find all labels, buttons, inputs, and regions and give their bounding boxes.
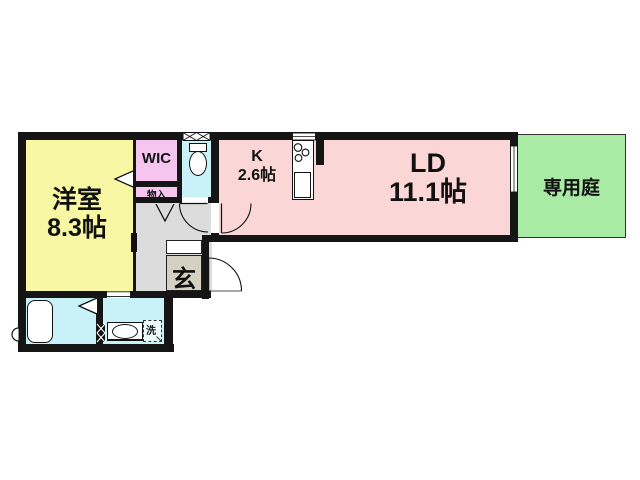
opening-room-to-washroom	[107, 291, 130, 298]
kitchen-name: K	[219, 147, 295, 166]
entrance-door-arc-icon	[209, 258, 242, 291]
living-dining-size: 11.1帖	[358, 178, 498, 207]
western-room-size: 8.3帖	[27, 214, 127, 242]
wall-entrance-right	[202, 238, 209, 299]
wall-wic-toilet	[177, 132, 182, 203]
western-room-label: 洋室 8.3帖	[27, 186, 127, 242]
entrance-label: 玄	[166, 259, 202, 294]
living-dining-label: LD 11.1帖	[358, 149, 498, 207]
entrance-step	[166, 240, 202, 254]
wall-kitchen-stub	[316, 132, 324, 165]
wall-left	[18, 132, 26, 352]
wall-bath-divider	[96, 298, 103, 344]
floorplan-canvas: 洋室 8.3帖 WIC 物入 K 2.6帖 LD 11.1帖 専用庭 玄 洗	[0, 0, 640, 480]
wall-washroom-right	[164, 291, 173, 352]
toilet-bowl-icon	[189, 151, 207, 176]
wic-label: WIC	[136, 150, 177, 167]
wall-bottom	[18, 344, 174, 352]
bathtub-icon	[27, 300, 53, 343]
laundry-label: 洗	[142, 322, 160, 337]
kitchen-label: K 2.6帖	[219, 147, 295, 185]
sliding-door-western-room	[131, 233, 137, 252]
western-room-name: 洋室	[27, 186, 127, 214]
living-dining-name: LD	[358, 149, 498, 178]
wall-top	[18, 132, 518, 140]
private-garden-label: 専用庭	[517, 173, 626, 200]
opening-hall-to-ld	[211, 203, 219, 233]
kitchen-sink-icon	[294, 172, 311, 198]
storage-label: 物入	[136, 187, 177, 201]
washbasin-bowl-icon	[112, 324, 138, 339]
wall-ld-bottom	[202, 235, 518, 242]
kitchen-size: 2.6帖	[219, 166, 295, 185]
